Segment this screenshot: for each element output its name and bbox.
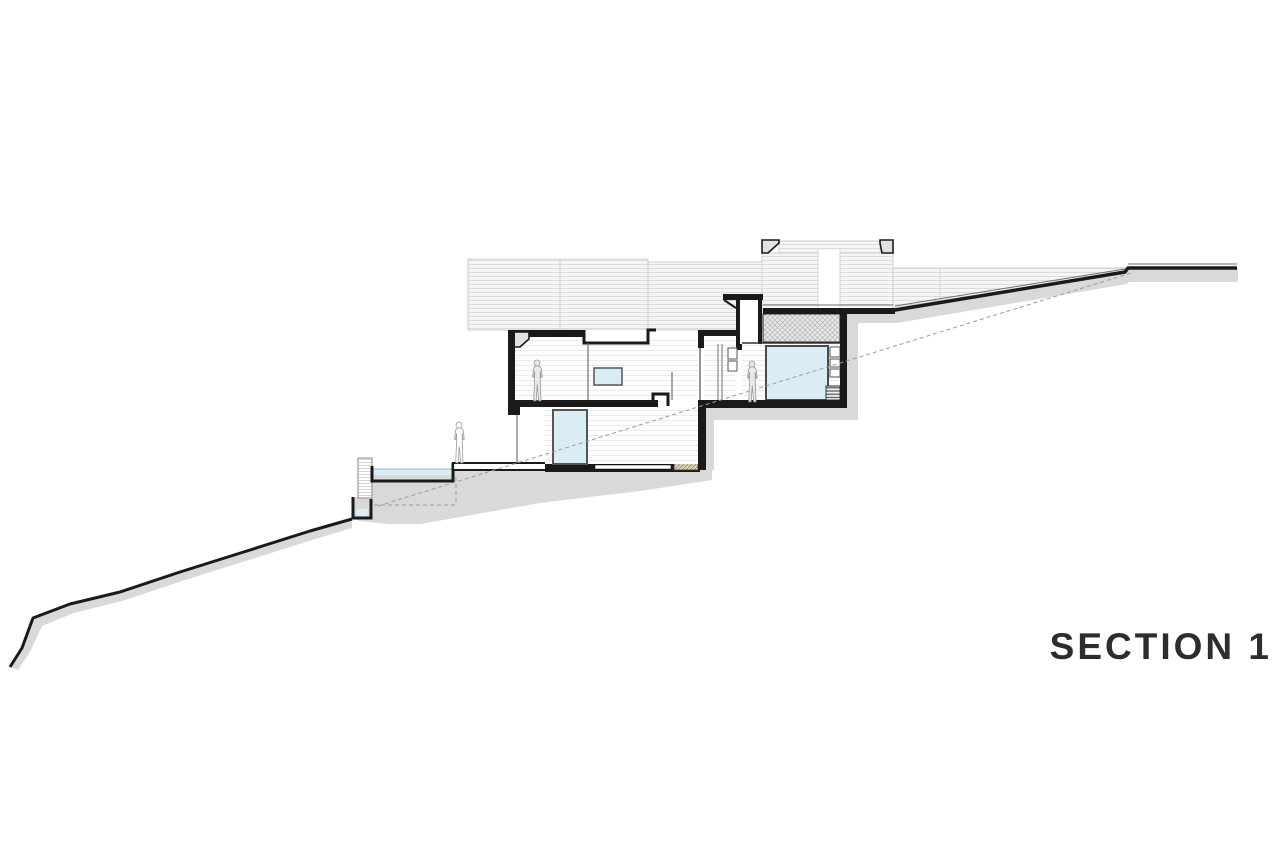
floor-channel bbox=[595, 465, 671, 469]
earth-band-lower-slope bbox=[10, 519, 352, 670]
chimney-strip bbox=[818, 250, 840, 310]
elevation-panel-left bbox=[468, 259, 648, 330]
pool-wall-hatched bbox=[358, 458, 372, 498]
figure-terrace bbox=[455, 422, 465, 463]
main-roof-slab bbox=[763, 308, 895, 314]
section-title: SECTION 1 bbox=[1050, 626, 1272, 668]
section-drawing-canvas bbox=[0, 0, 1280, 853]
architectural-section-sheet: SECTION 1 bbox=[0, 0, 1280, 853]
roof-upstand-left bbox=[698, 330, 704, 348]
picture-window bbox=[766, 346, 828, 400]
steps bbox=[826, 386, 840, 400]
upper-room-left-wall bbox=[508, 330, 515, 408]
earth-band-under-main-floor bbox=[700, 404, 858, 470]
wall-downstand bbox=[508, 407, 520, 415]
clerestory-wall-left bbox=[736, 300, 740, 344]
main-floor-slab bbox=[698, 400, 847, 408]
pool-water bbox=[373, 469, 453, 475]
glass-door bbox=[553, 410, 587, 464]
corridor-roof-slab bbox=[698, 330, 742, 336]
small-window bbox=[594, 368, 622, 385]
lower-room-group bbox=[545, 408, 698, 464]
roof-cap-right bbox=[880, 240, 893, 253]
wall-cabinet bbox=[728, 361, 737, 371]
shelf-box bbox=[830, 369, 840, 377]
rooflight-well bbox=[584, 330, 648, 343]
roof-cap-left bbox=[762, 240, 779, 253]
main-room-right-wall bbox=[840, 308, 847, 408]
clerestory-parapet-cap bbox=[723, 294, 763, 300]
shelf-box bbox=[830, 347, 840, 357]
terrace-slab bbox=[453, 463, 548, 470]
upper-floor-slab bbox=[508, 400, 658, 407]
shelf-box bbox=[830, 359, 840, 367]
level-step-wall bbox=[698, 400, 706, 470]
clerestory-wall-right bbox=[758, 300, 762, 344]
wall-cabinet bbox=[728, 348, 737, 359]
gutter-water bbox=[357, 509, 368, 516]
roof-buildup-hatch bbox=[763, 314, 840, 342]
